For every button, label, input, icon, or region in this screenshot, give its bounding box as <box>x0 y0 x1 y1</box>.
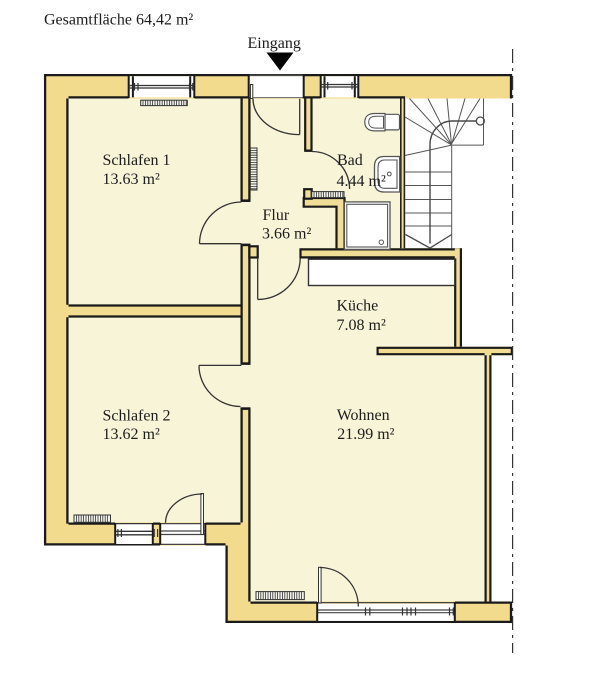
svg-text:3.66 m²: 3.66 m² <box>262 226 311 243</box>
svg-text:Bad: Bad <box>337 152 363 169</box>
svg-text:13.63 m²: 13.63 m² <box>103 171 160 188</box>
svg-text:Flur: Flur <box>263 207 290 224</box>
svg-text:Küche: Küche <box>337 298 379 315</box>
svg-text:21.99 m²: 21.99 m² <box>337 426 394 443</box>
svg-text:Schlafen 1: Schlafen 1 <box>103 152 171 169</box>
svg-text:Eingang: Eingang <box>248 35 301 52</box>
svg-text:Schlafen 2: Schlafen 2 <box>103 407 171 424</box>
svg-text:4.44 m²: 4.44 m² <box>337 173 386 190</box>
svg-text:7.08 m²: 7.08 m² <box>337 317 386 334</box>
svg-text:Gesamtfläche 64,42 m²: Gesamtfläche 64,42 m² <box>44 12 193 29</box>
svg-text:13.62 m²: 13.62 m² <box>103 426 160 443</box>
svg-text:Wohnen: Wohnen <box>337 407 390 424</box>
